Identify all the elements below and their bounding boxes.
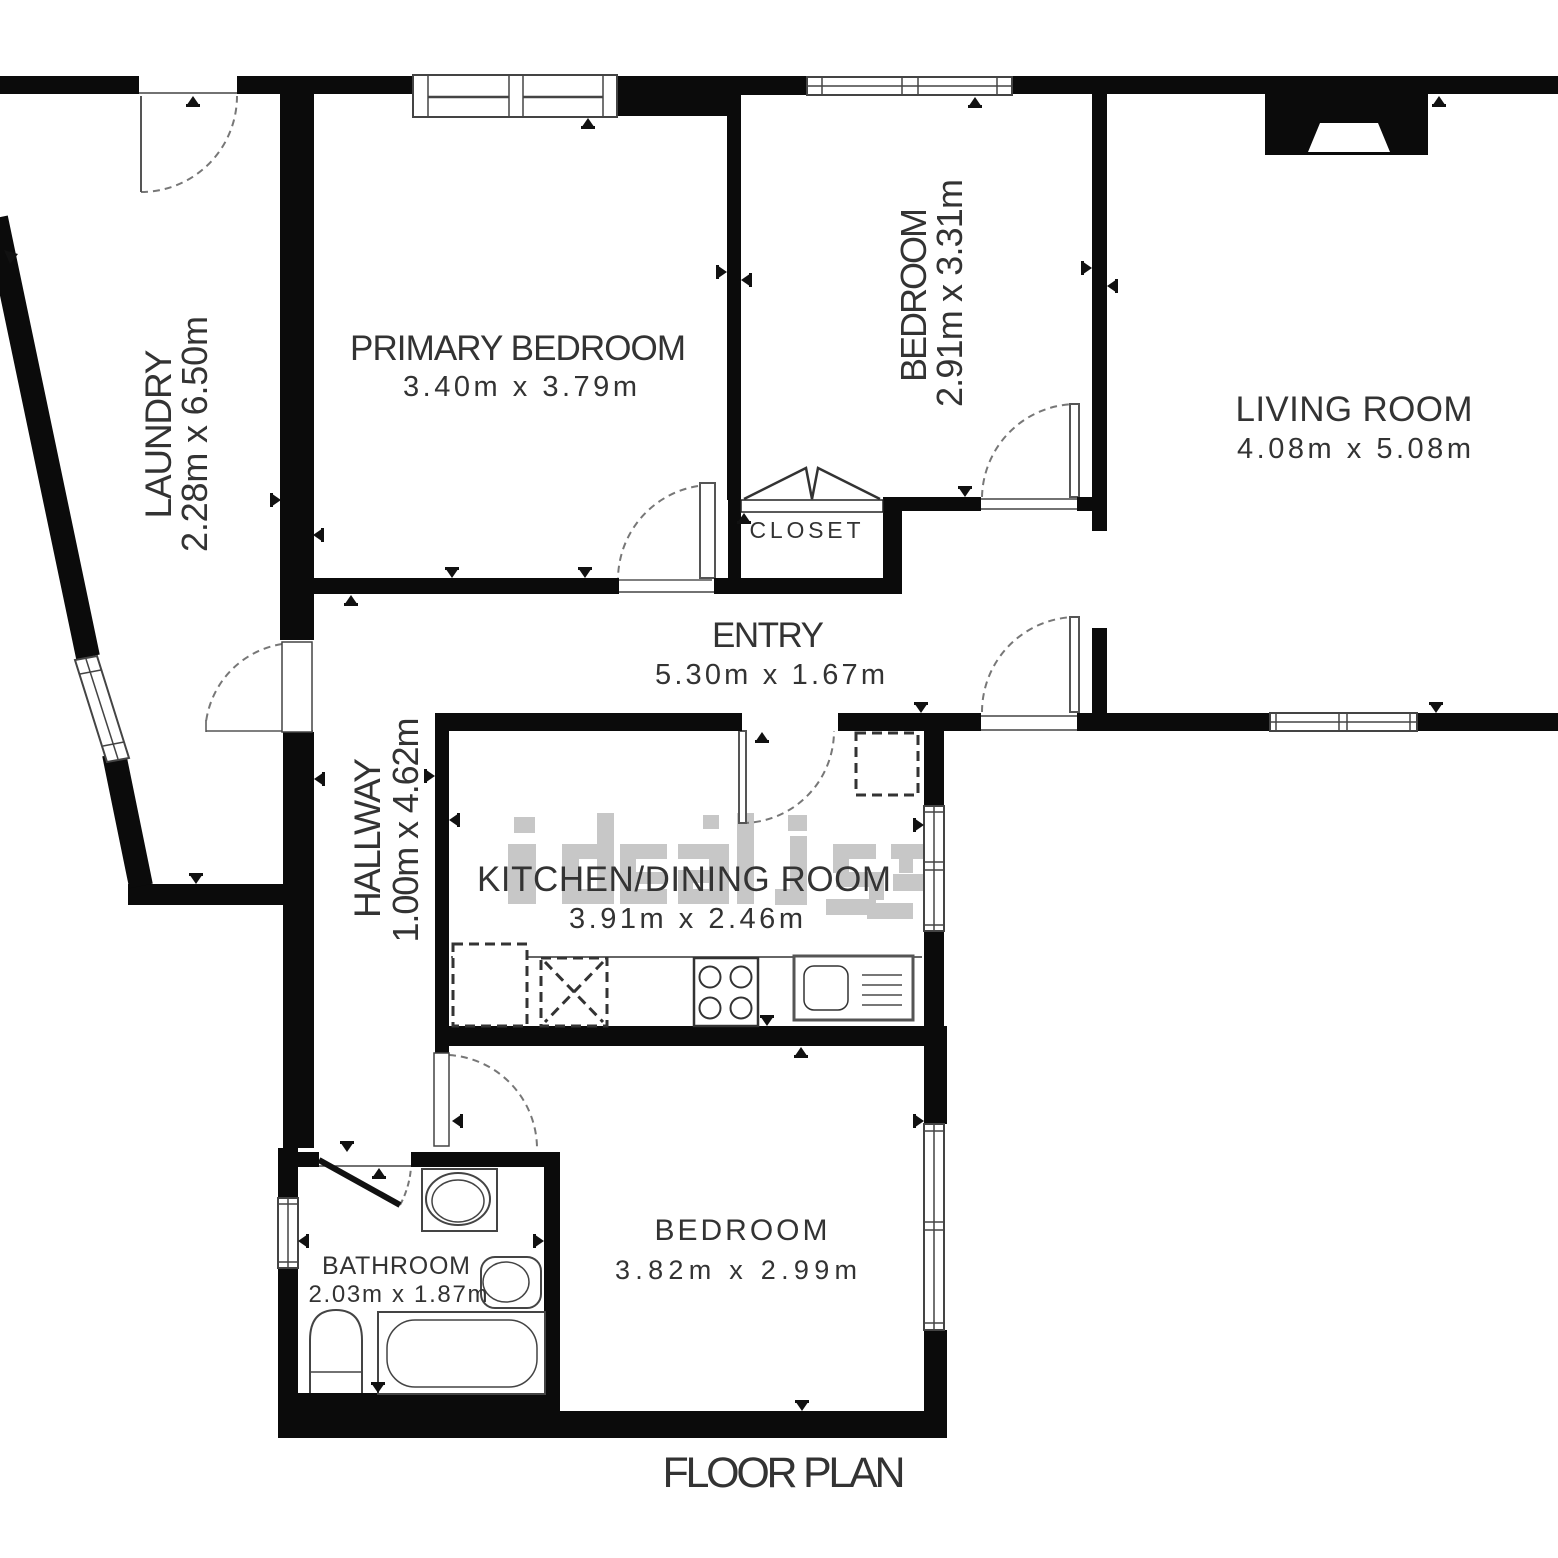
svg-text:4.08m x 5.08m: 4.08m x 5.08m bbox=[1237, 433, 1471, 465]
svg-text:HALLWAY: HALLWAY bbox=[347, 758, 388, 918]
svg-text:3.40m x 3.79m: 3.40m x 3.79m bbox=[403, 371, 637, 403]
svg-text:3.82m x 2.99m: 3.82m x 2.99m bbox=[615, 1255, 857, 1285]
svg-text:LAUNDRY: LAUNDRY bbox=[138, 350, 179, 519]
svg-text:2.91m x 3.31m: 2.91m x 3.31m bbox=[929, 179, 970, 407]
svg-text:3.91m x 2.46m: 3.91m x 2.46m bbox=[569, 903, 803, 935]
svg-text:KITCHEN/DINING ROOM: KITCHEN/DINING ROOM bbox=[477, 860, 891, 899]
svg-text:2.28m x 6.50m: 2.28m x 6.50m bbox=[174, 316, 215, 552]
svg-text:1.00m x 4.62m: 1.00m x 4.62m bbox=[385, 718, 426, 943]
svg-text:ENTRY: ENTRY bbox=[712, 616, 824, 655]
svg-text:FLOOR PLAN: FLOOR PLAN bbox=[663, 1449, 906, 1497]
svg-text:2.03m x 1.87m: 2.03m x 1.87m bbox=[309, 1281, 488, 1308]
svg-text:5.30m x 1.67m: 5.30m x 1.67m bbox=[655, 659, 885, 691]
svg-text:BEDROOM: BEDROOM bbox=[655, 1214, 828, 1247]
svg-text:BATHROOM: BATHROOM bbox=[322, 1252, 470, 1280]
svg-text:LIVING ROOM: LIVING ROOM bbox=[1236, 390, 1473, 429]
svg-text:BEDROOM: BEDROOM bbox=[893, 208, 934, 382]
svg-text:PRIMARY BEDROOM: PRIMARY BEDROOM bbox=[350, 329, 686, 368]
